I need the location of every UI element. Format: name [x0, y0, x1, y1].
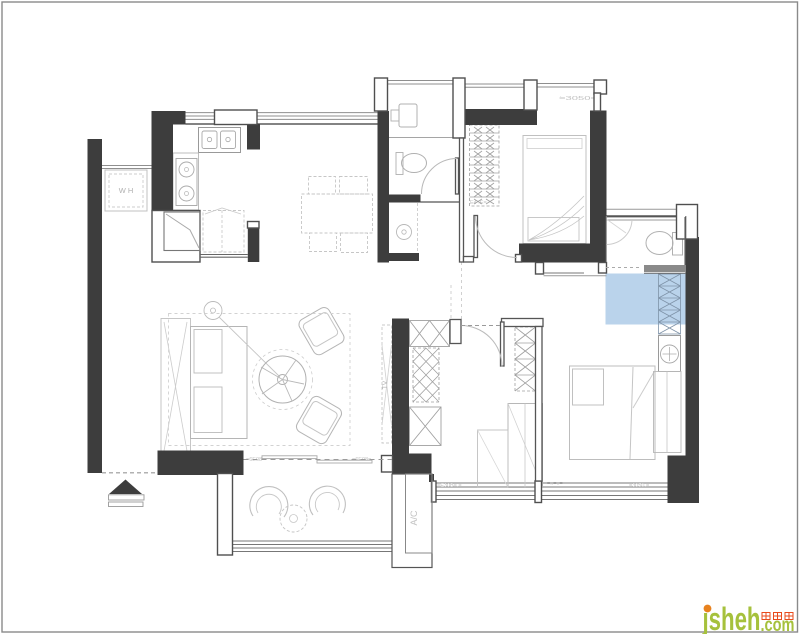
svg-text:jsheh: jsheh — [702, 601, 761, 634]
svg-text:=3050.=: =3050.= — [629, 483, 649, 489]
svg-text:=..=..=: =..=..= — [547, 481, 563, 487]
svg-text:W H: W H — [119, 186, 134, 195]
svg-text:TV: TV — [382, 380, 389, 389]
svg-text:=3050=: =3050= — [559, 96, 597, 102]
svg-text:A/C: A/C — [409, 510, 419, 526]
svg-text:=E30B=.=: =E30B=.= — [437, 483, 462, 489]
